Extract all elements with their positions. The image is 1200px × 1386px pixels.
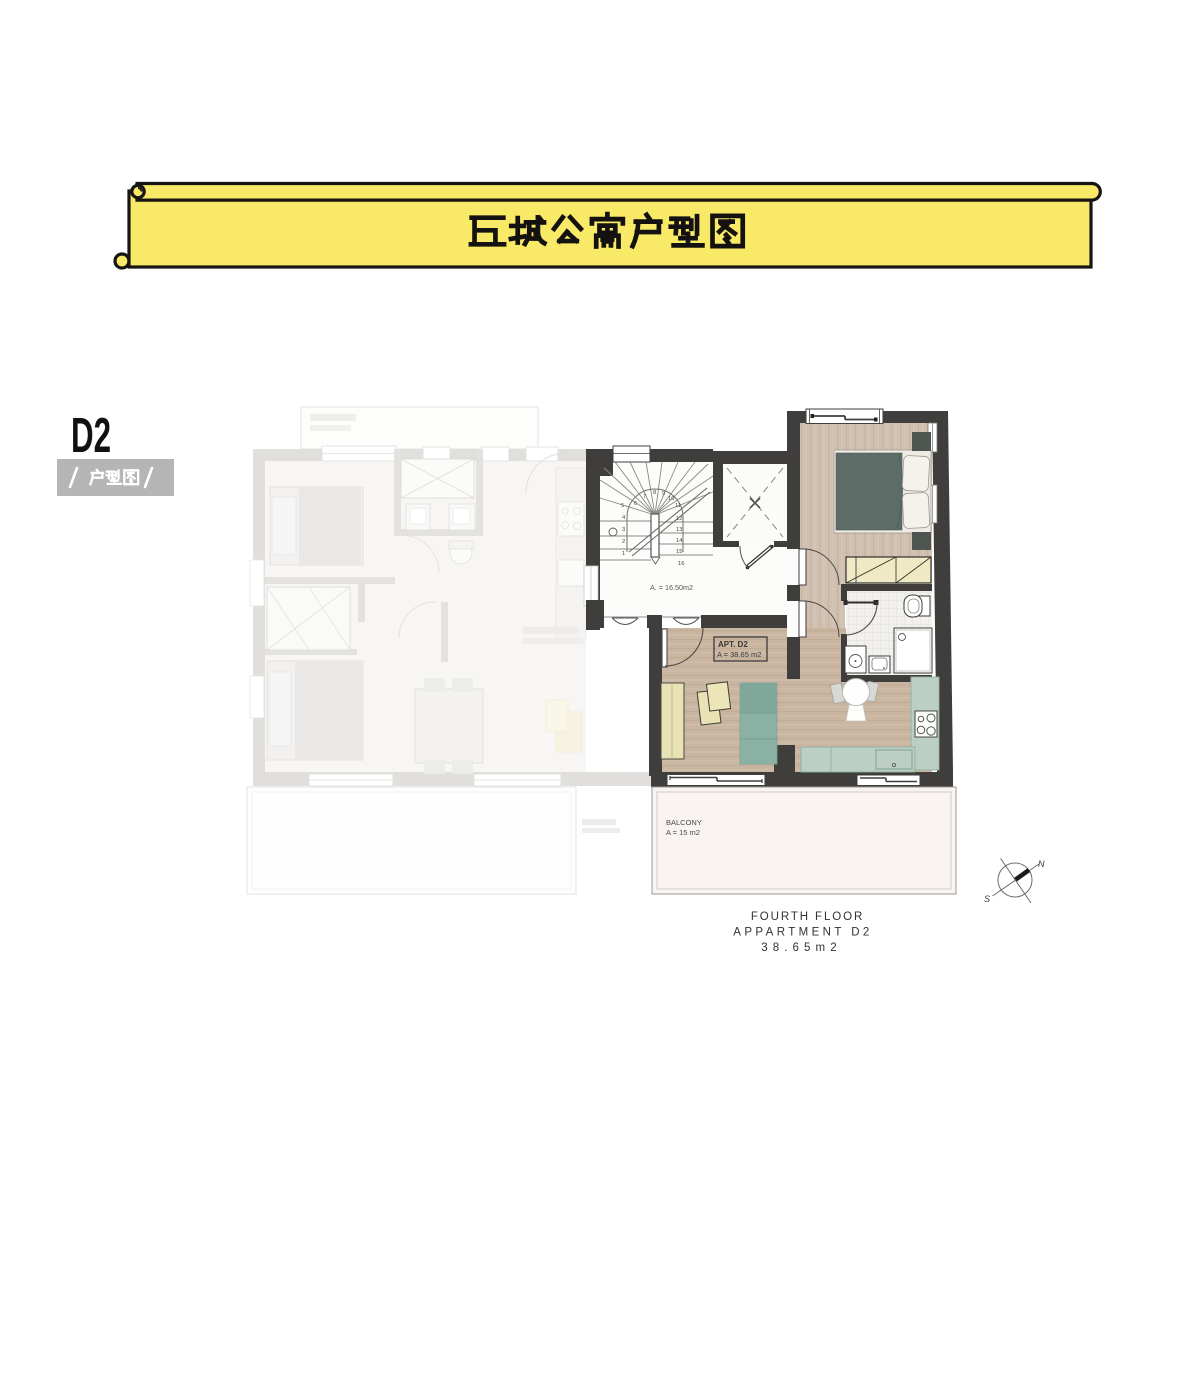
svg-text:FOURTH FLOOR: FOURTH FLOOR xyxy=(751,911,864,923)
svg-text:A = 15 m2: A = 15 m2 xyxy=(666,828,700,837)
svg-text:16: 16 xyxy=(678,561,684,567)
svg-text:APT. D2: APT. D2 xyxy=(718,640,748,649)
svg-text:N: N xyxy=(1038,859,1045,869)
svg-text:BALCONY: BALCONY xyxy=(666,818,702,827)
svg-text:3: 3 xyxy=(622,527,625,533)
svg-text:5: 5 xyxy=(621,503,624,509)
svg-text:A = 38.65 m2: A = 38.65 m2 xyxy=(717,650,761,659)
svg-text:6: 6 xyxy=(634,501,637,507)
svg-text:APPARTMENT D2: APPARTMENT D2 xyxy=(733,927,872,939)
svg-text:7: 7 xyxy=(643,494,646,500)
svg-text:2: 2 xyxy=(622,539,625,545)
svg-text:9: 9 xyxy=(662,491,665,497)
svg-text:13: 13 xyxy=(676,527,682,533)
svg-text:11: 11 xyxy=(675,503,681,509)
svg-text:A. = 16.50m2: A. = 16.50m2 xyxy=(650,583,693,592)
svg-text:1: 1 xyxy=(622,551,625,557)
svg-text:D2: D2 xyxy=(71,409,111,463)
svg-text:15: 15 xyxy=(676,549,682,555)
svg-text:S: S xyxy=(984,894,990,904)
svg-text:8: 8 xyxy=(653,490,656,496)
svg-text:12: 12 xyxy=(676,516,682,522)
svg-text:14: 14 xyxy=(676,538,683,544)
svg-text:38.65m2: 38.65m2 xyxy=(761,942,841,954)
svg-text:10: 10 xyxy=(668,496,674,502)
